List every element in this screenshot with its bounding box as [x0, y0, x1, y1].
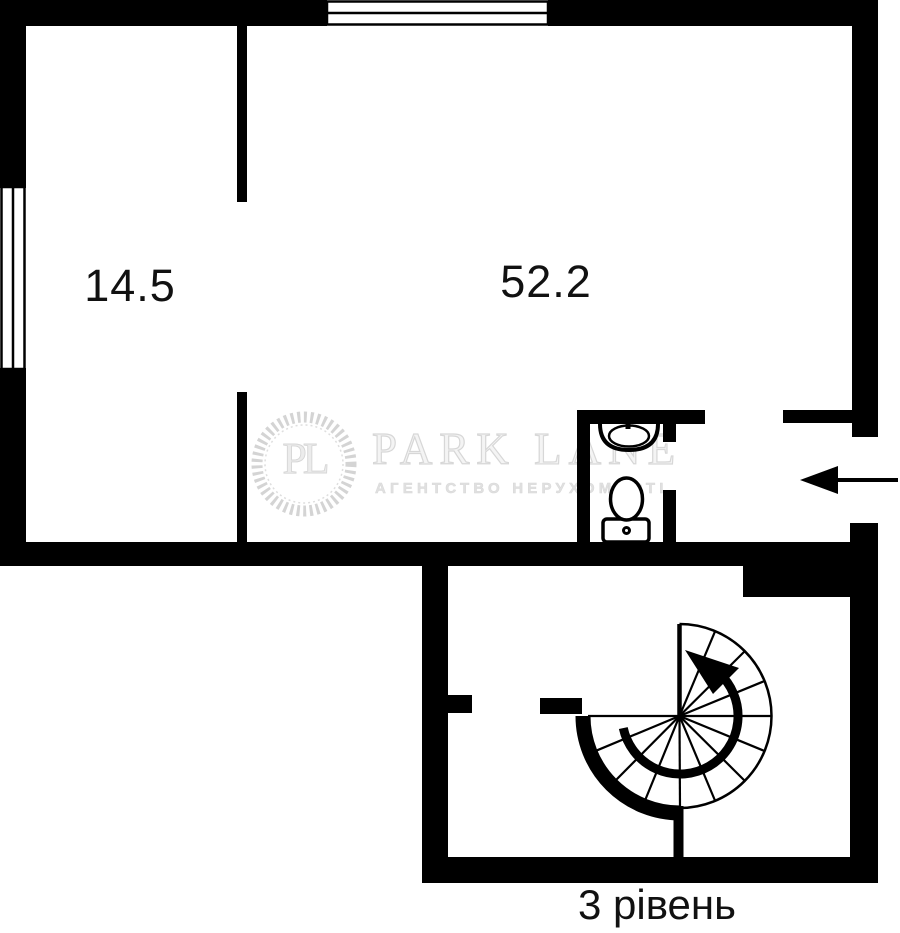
room-area-label: 52.2: [486, 259, 606, 304]
wall: [0, 542, 852, 566]
wall: [852, 0, 878, 437]
plan-drawing: [0, 0, 900, 933]
floor-plan: PL PARK LANE АГЕНТСТВО НЕРУХОМОСТІ: [0, 0, 900, 933]
walls: [0, 0, 878, 883]
wall-partition: [237, 392, 247, 542]
wall-bathroom: [577, 410, 705, 424]
toilet-icon: [603, 478, 649, 542]
wall-bathroom: [577, 410, 590, 543]
wall: [783, 410, 852, 423]
wall-bathroom: [663, 410, 676, 442]
level-label: 3 рівень: [537, 884, 777, 926]
spiral-staircase-icon: [583, 624, 772, 860]
entrance-arrow-icon: [800, 466, 898, 494]
wall: [0, 368, 26, 566]
wall: [743, 566, 878, 597]
window-top: [327, 2, 548, 25]
wall: [0, 0, 327, 26]
wall: [422, 857, 877, 883]
wall-partition: [237, 26, 247, 202]
window-left: [2, 187, 25, 369]
wall: [422, 566, 448, 883]
room-area-label: 14.5: [70, 263, 190, 308]
wall: [548, 0, 878, 26]
wall-stub: [448, 695, 472, 713]
wall-bathroom: [663, 490, 676, 543]
wall-stub: [540, 698, 582, 714]
wall: [0, 0, 26, 188]
